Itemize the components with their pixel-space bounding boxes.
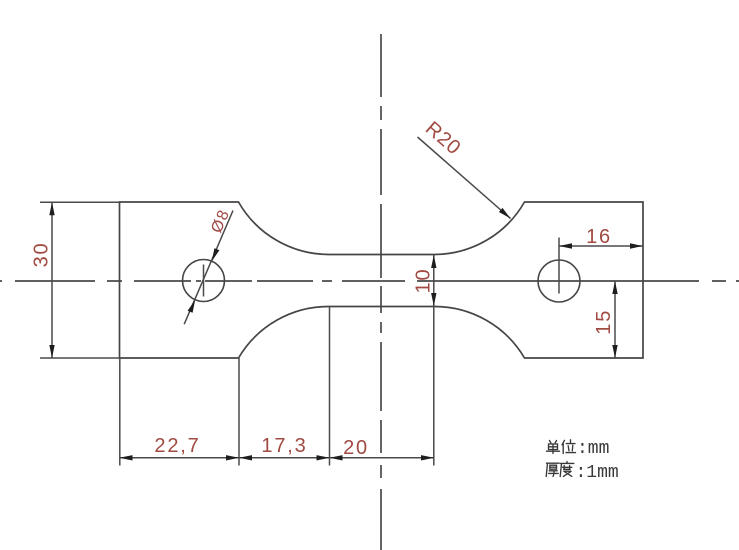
svg-text:22,7: 22,7 — [154, 435, 200, 457]
svg-text:R20: R20 — [421, 117, 465, 159]
svg-text:Ø8: Ø8 — [208, 207, 233, 236]
svg-text::1mm: :1mm — [576, 463, 619, 483]
svg-text:16: 16 — [586, 226, 612, 248]
svg-text:20: 20 — [343, 437, 369, 459]
svg-text::mm: :mm — [577, 439, 609, 459]
svg-text:15: 15 — [593, 309, 615, 335]
svg-text:10: 10 — [413, 268, 435, 294]
svg-text:17,3: 17,3 — [261, 435, 307, 457]
svg-text:30: 30 — [31, 242, 53, 268]
